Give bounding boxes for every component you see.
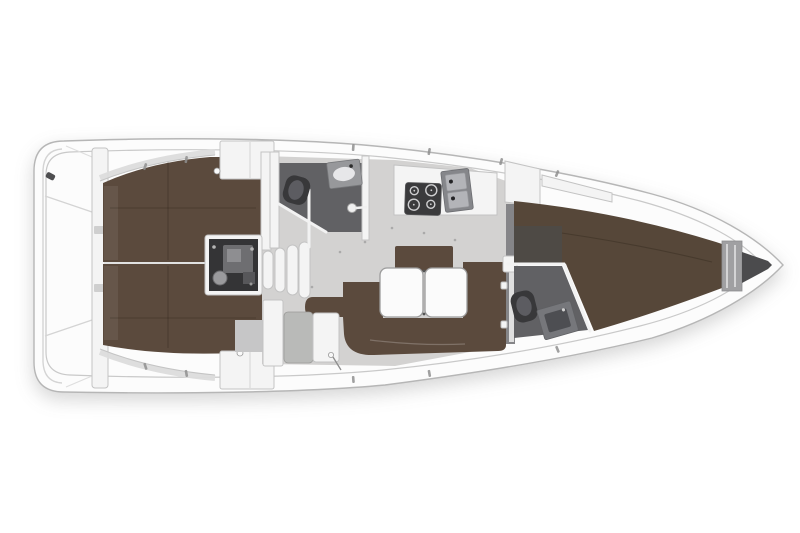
table-hinge <box>423 270 426 273</box>
yacht-floorplan-image <box>0 0 800 533</box>
saloon-step-box <box>313 313 339 362</box>
galley-double-sink <box>441 168 474 212</box>
forward-cabin-vanity <box>514 226 562 264</box>
engine-pulley <box>213 271 227 285</box>
saloon-backrest-seat <box>395 246 453 271</box>
deck-fitting <box>328 352 333 357</box>
navigation-seat <box>284 312 313 363</box>
engine-compartment <box>205 235 262 295</box>
shower-fitting <box>348 204 357 213</box>
companionway-side-wall <box>263 300 283 366</box>
door-hinge <box>501 282 507 289</box>
table-hinge <box>423 313 426 316</box>
locker-knob <box>214 168 220 174</box>
bow-headboard <box>722 241 742 291</box>
saloon-table-leaf-left <box>380 268 423 317</box>
galley-locker <box>505 161 540 206</box>
galley-stove <box>404 182 441 215</box>
aft-head-sink <box>327 159 363 189</box>
saloon-table-leaf-right <box>425 268 467 317</box>
door-hinge <box>501 321 507 328</box>
aft-head-wall <box>270 152 279 248</box>
floorplan-canvas <box>0 0 800 533</box>
aft-head-wall <box>362 156 369 240</box>
